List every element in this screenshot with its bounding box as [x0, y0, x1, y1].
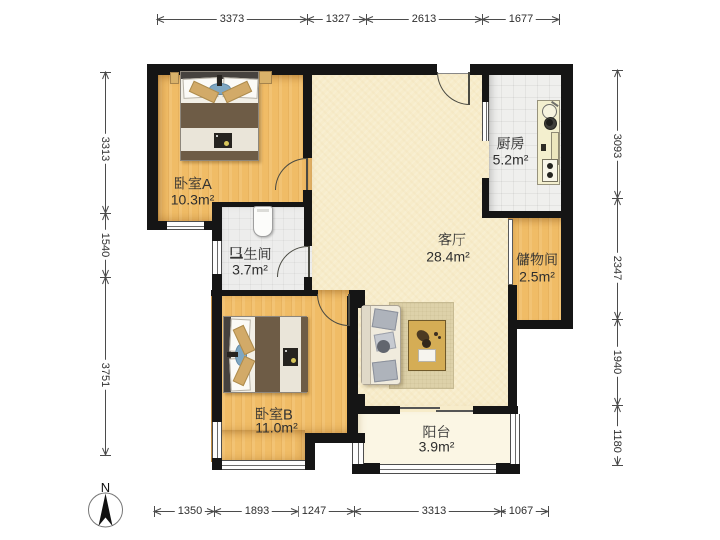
svg-text:A: A: [202, 177, 212, 193]
svg-text:N: N: [101, 480, 110, 495]
